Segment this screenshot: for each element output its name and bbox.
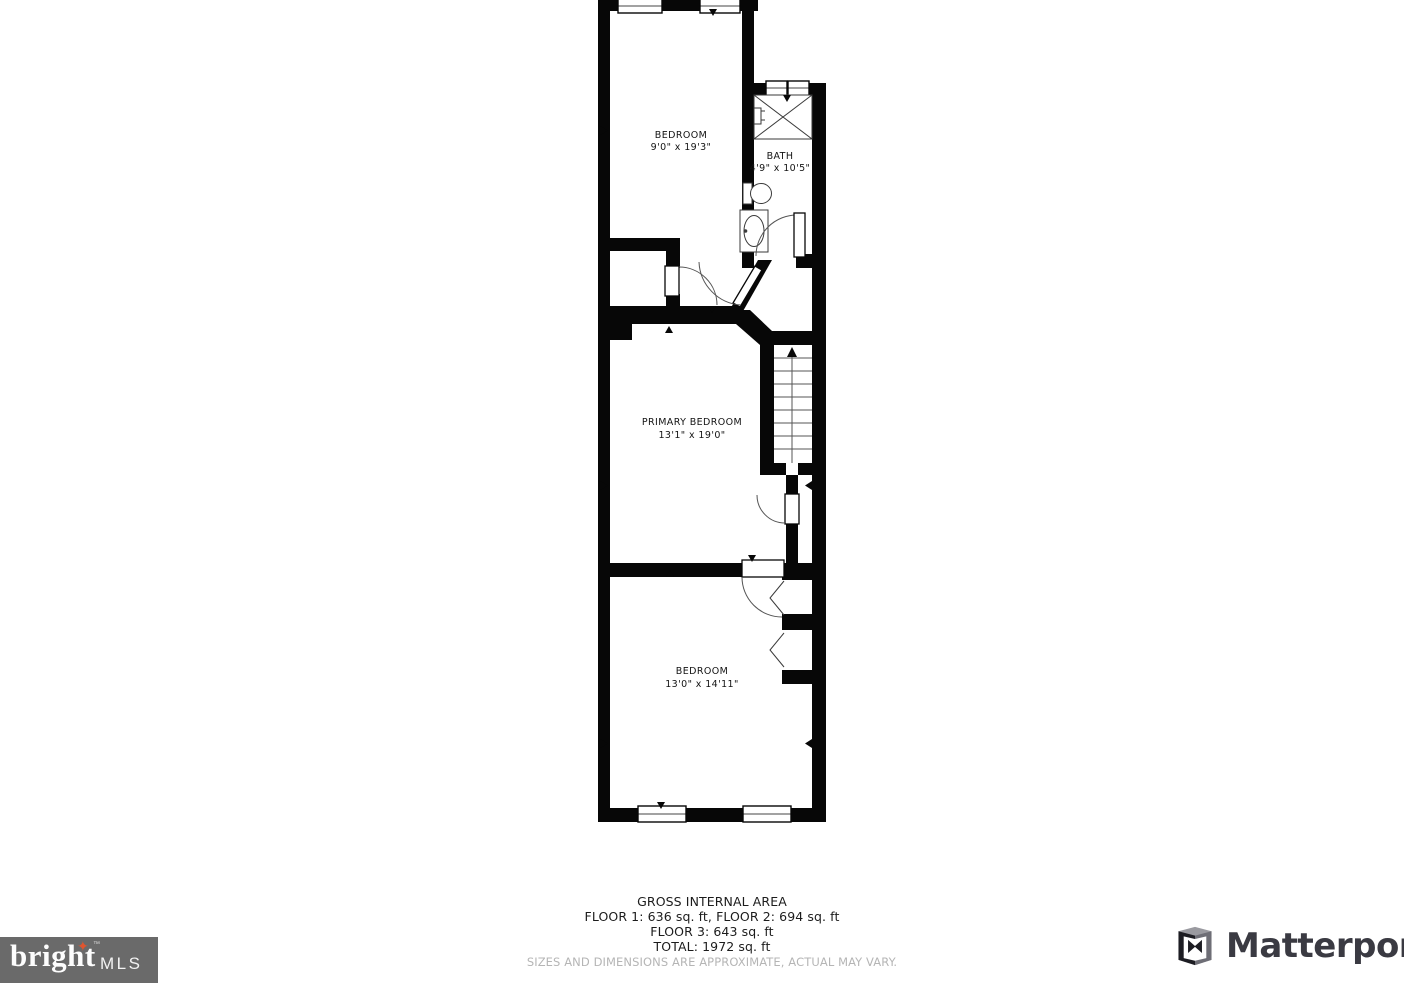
bedroom1-door bbox=[699, 262, 762, 307]
trademark-symbol: ™ bbox=[93, 941, 100, 948]
total-area: TOTAL: 1972 sq. ft bbox=[412, 939, 1012, 954]
matterport-logo: Matterport bbox=[1175, 925, 1404, 967]
dimensions-disclaimer: SIZES AND DIMENSIONS ARE APPROXIMATE, AC… bbox=[412, 955, 1012, 970]
floor-areas-line-1: FLOOR 1: 636 sq. ft, FLOOR 2: 694 sq. ft bbox=[412, 909, 1012, 924]
floorplan-page: { "plan": { "rooms": [ { "name": "BEDROO… bbox=[0, 0, 1404, 983]
sink-icon bbox=[740, 210, 768, 252]
room-label-bedroom-3: BEDROOM bbox=[676, 666, 728, 677]
shower-icon bbox=[754, 95, 812, 139]
matterport-wordmark: Matterport bbox=[1226, 926, 1404, 966]
room-label-bedroom-1: BEDROOM bbox=[655, 130, 707, 141]
stairs-up-arrow bbox=[787, 347, 797, 357]
matterport-icon bbox=[1175, 925, 1215, 967]
area-summary: GROSS INTERNAL AREA FLOOR 1: 636 sq. ft,… bbox=[412, 894, 1012, 970]
floor-areas-line-2: FLOOR 3: 643 sq. ft bbox=[412, 924, 1012, 939]
bright-mls-logo: bright ✦ ™ MLS bbox=[0, 937, 158, 983]
room-dims-primary-bedroom: 13'1" x 19'0" bbox=[658, 430, 725, 441]
bright-star-icon: ✦ bbox=[77, 939, 89, 955]
room-dims-bath: 4'9" x 10'5" bbox=[750, 163, 811, 174]
gross-internal-area-title: GROSS INTERNAL AREA bbox=[412, 894, 1012, 909]
floor-plan: BEDROOM 9'0" x 19'3" BATH 4'9" x 10'5" P… bbox=[560, 0, 860, 830]
room-dims-bedroom-1: 9'0" x 19'3" bbox=[651, 142, 712, 153]
room-label-primary-bedroom: PRIMARY BEDROOM bbox=[642, 417, 742, 428]
mls-wordmark: MLS bbox=[100, 954, 142, 974]
staircase bbox=[774, 347, 812, 463]
primary-bedroom-door bbox=[757, 494, 799, 524]
toilet-icon bbox=[743, 183, 772, 204]
room-label-bath: BATH bbox=[767, 151, 794, 162]
room-dims-bedroom-3: 13'0" x 14'11" bbox=[665, 679, 739, 690]
closet-bifold-doors bbox=[770, 581, 784, 667]
